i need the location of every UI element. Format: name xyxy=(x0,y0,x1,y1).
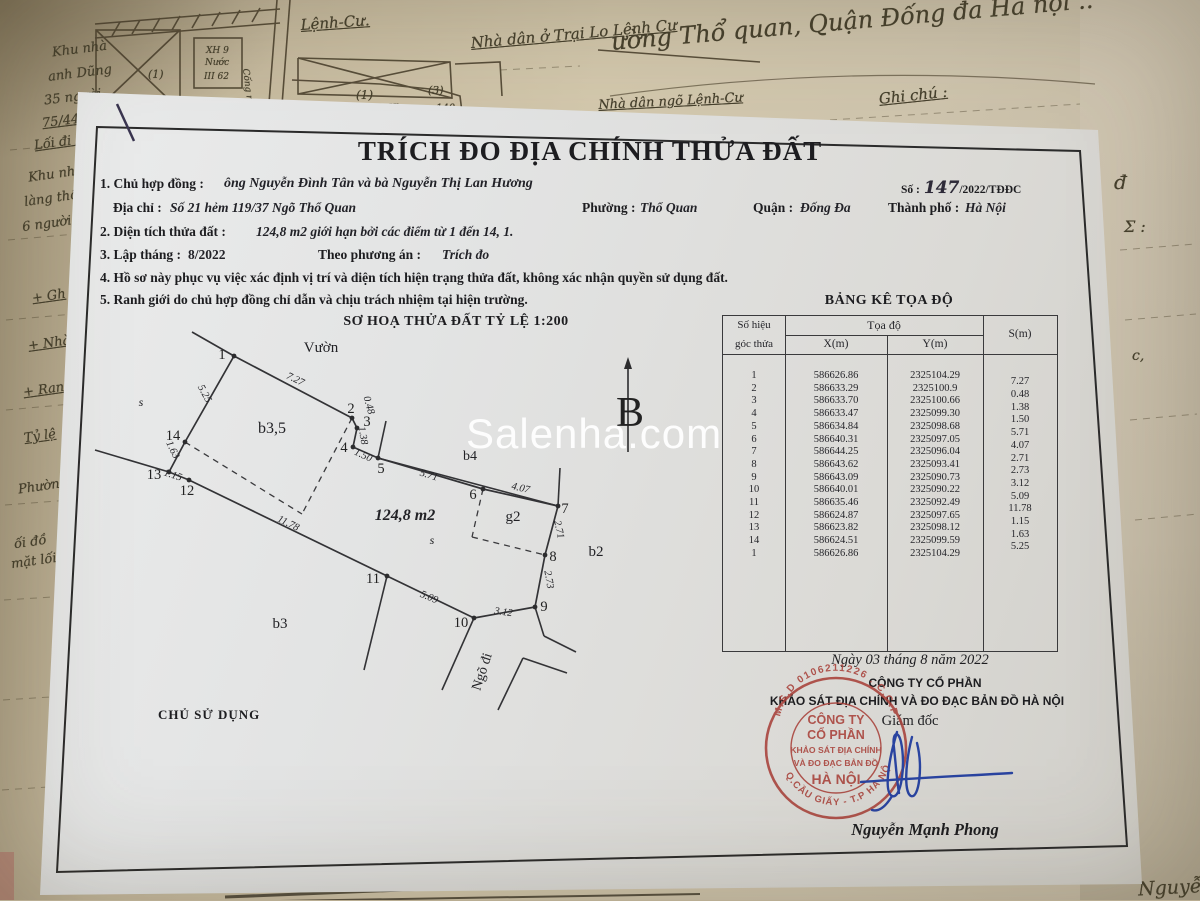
stamp-center-line: CÔNG TY xyxy=(808,712,866,727)
stamp-center-line: CỔ PHẦN xyxy=(807,727,865,742)
stamp-ring-bottom: ★ Q.CẦU GIẤY - T.P HÀ NỘI xyxy=(0,0,893,808)
svg-text:★ Q.CẦU GIẤY - T.P HÀ NỘI: ★ Q.CẦU GIẤY - T.P HÀ NỘI xyxy=(0,0,893,808)
stamp-center-line: KHẢO SÁT ĐỊA CHÍNH xyxy=(790,744,881,755)
stamp-center-line: VÀ ĐO ĐẠC BẢN ĐỒ xyxy=(794,757,879,768)
svg-text:M.S.D 0106211226 . C.C.P: M.S.D 0106211226 . C.C.P xyxy=(772,663,900,718)
watermark: Salenha.com xyxy=(466,410,722,458)
stamp-center-line: HÀ NỘI xyxy=(812,770,861,787)
stamp-ring-top: M.S.D 0106211226 . C.C.P xyxy=(772,663,900,718)
company-stamp: M.S.D 0106211226 . C.C.P ★ Q.CẦU GIẤY - … xyxy=(0,0,906,818)
